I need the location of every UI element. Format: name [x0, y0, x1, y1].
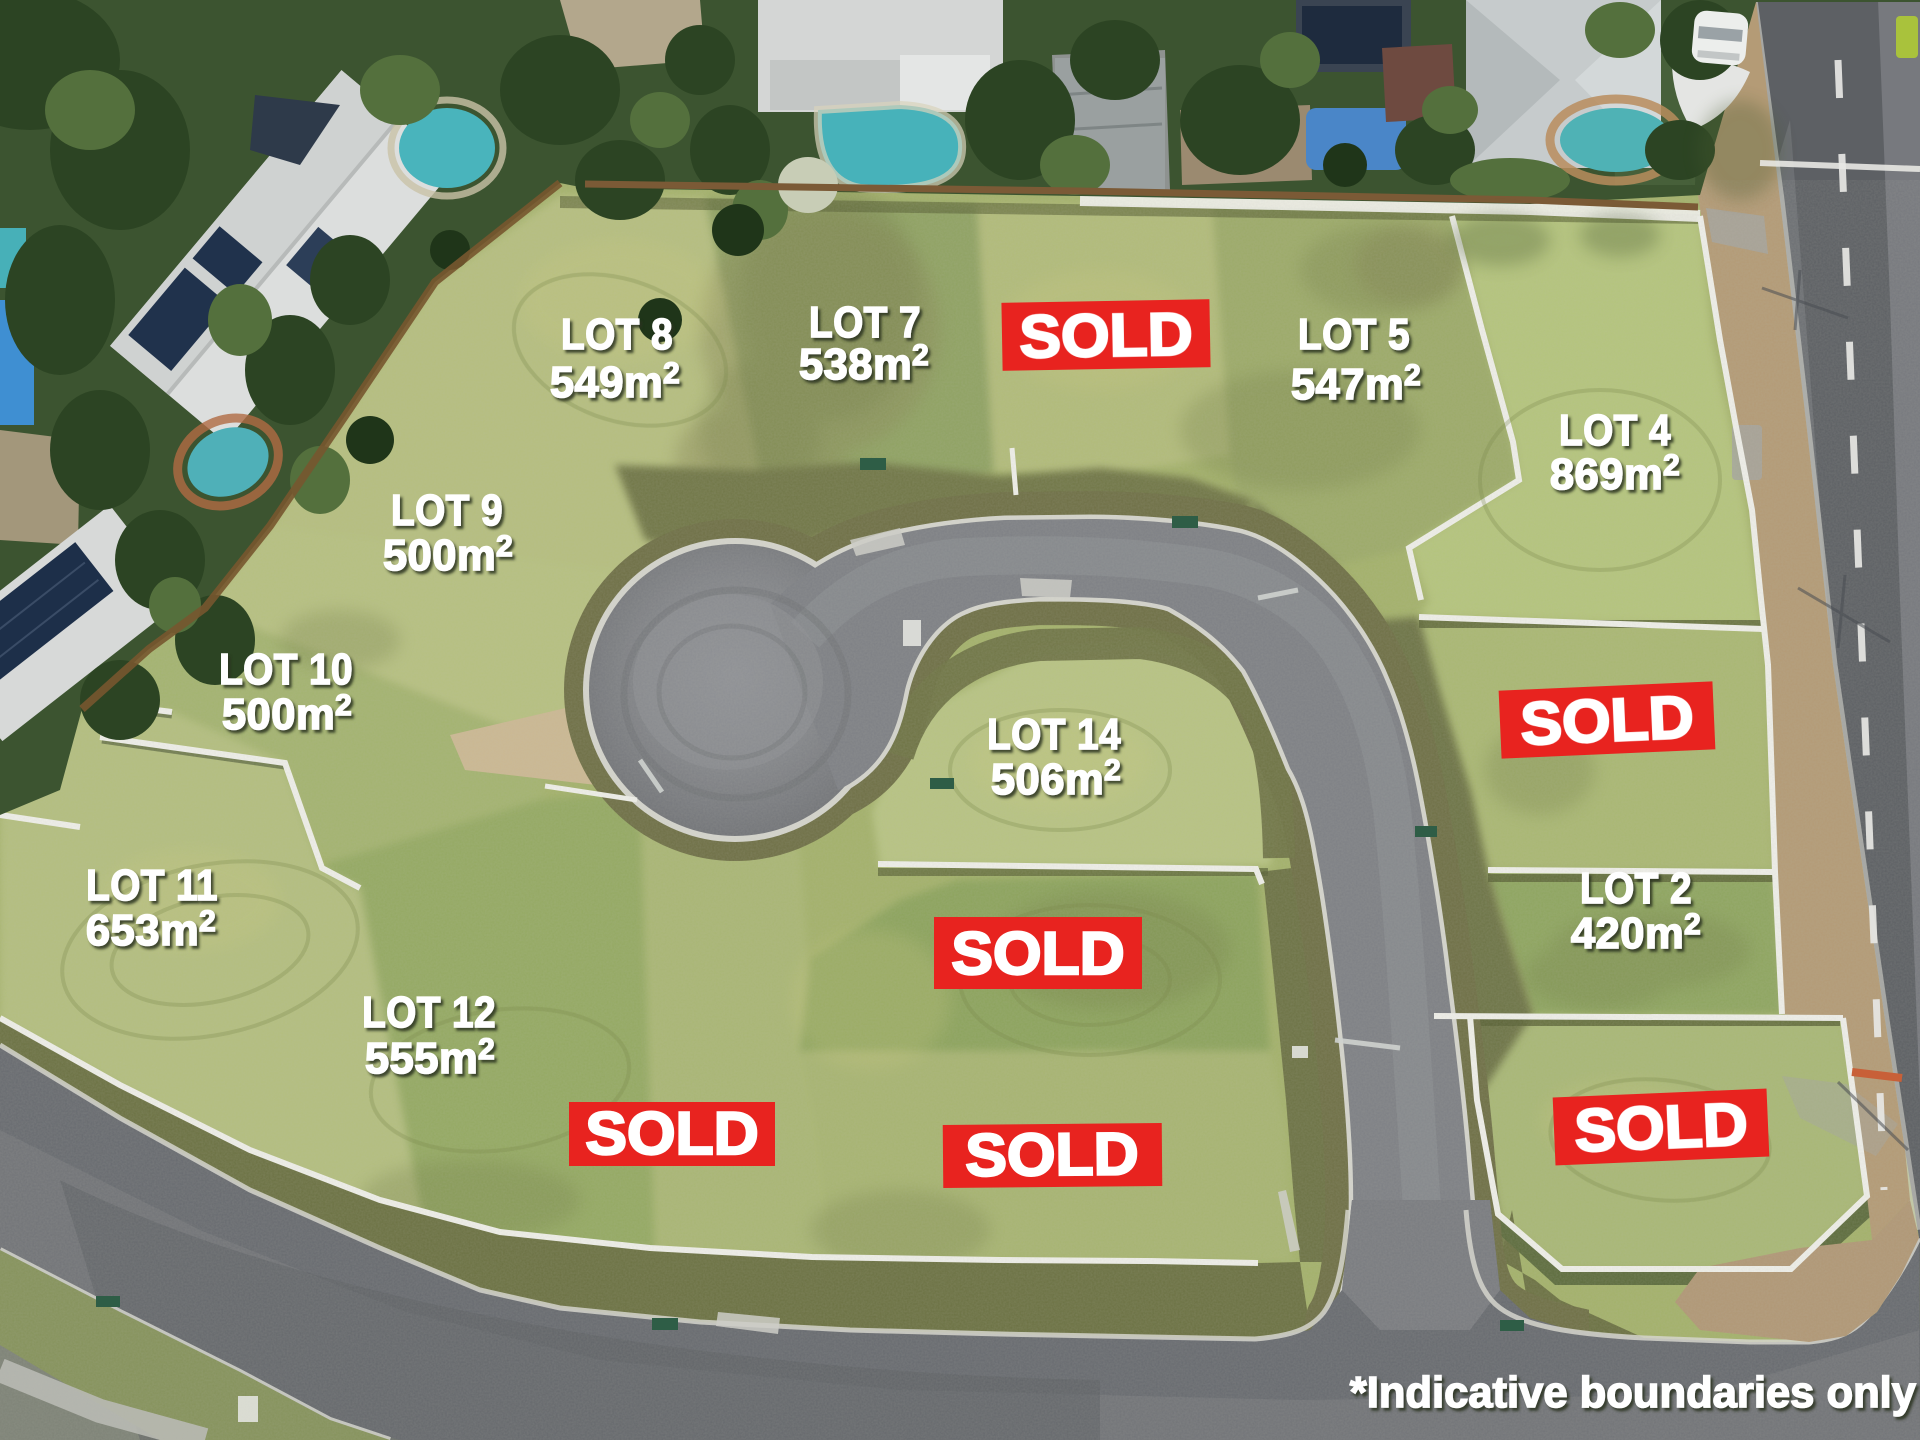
svg-text:500m2: 500m2	[222, 689, 352, 739]
svg-text:SOLD: SOLD	[1519, 683, 1695, 757]
svg-text:549m2: 549m2	[550, 357, 680, 407]
svg-text:*Indicative boundaries only: *Indicative boundaries only	[1350, 1368, 1917, 1417]
svg-text:SOLD: SOLD	[951, 920, 1124, 987]
svg-text:653m2: 653m2	[86, 905, 216, 955]
svg-text:LOT 10: LOT 10	[219, 644, 353, 694]
svg-text:SOLD: SOLD	[585, 1100, 758, 1167]
svg-text:547m2: 547m2	[1291, 359, 1421, 409]
svg-text:SOLD: SOLD	[1573, 1090, 1749, 1164]
svg-text:LOT 4: LOT 4	[1559, 405, 1671, 455]
svg-text:538m2: 538m2	[799, 339, 929, 389]
svg-text:LOT 5: LOT 5	[1298, 309, 1410, 359]
svg-text:506m2: 506m2	[991, 754, 1121, 804]
svg-text:LOT 12: LOT 12	[362, 987, 496, 1037]
svg-text:LOT 14: LOT 14	[987, 709, 1121, 759]
svg-text:420m2: 420m2	[1571, 908, 1701, 958]
svg-text:LOT 8: LOT 8	[561, 309, 673, 359]
svg-text:869m2: 869m2	[1550, 449, 1680, 499]
svg-text:LOT 9: LOT 9	[391, 485, 503, 535]
svg-text:500m2: 500m2	[383, 530, 513, 580]
svg-text:LOT 11: LOT 11	[86, 860, 218, 910]
svg-text:555m2: 555m2	[365, 1033, 495, 1083]
svg-text:LOT 2: LOT 2	[1580, 863, 1692, 913]
svg-text:SOLD: SOLD	[965, 1120, 1139, 1188]
svg-text:SOLD: SOLD	[1019, 301, 1193, 371]
